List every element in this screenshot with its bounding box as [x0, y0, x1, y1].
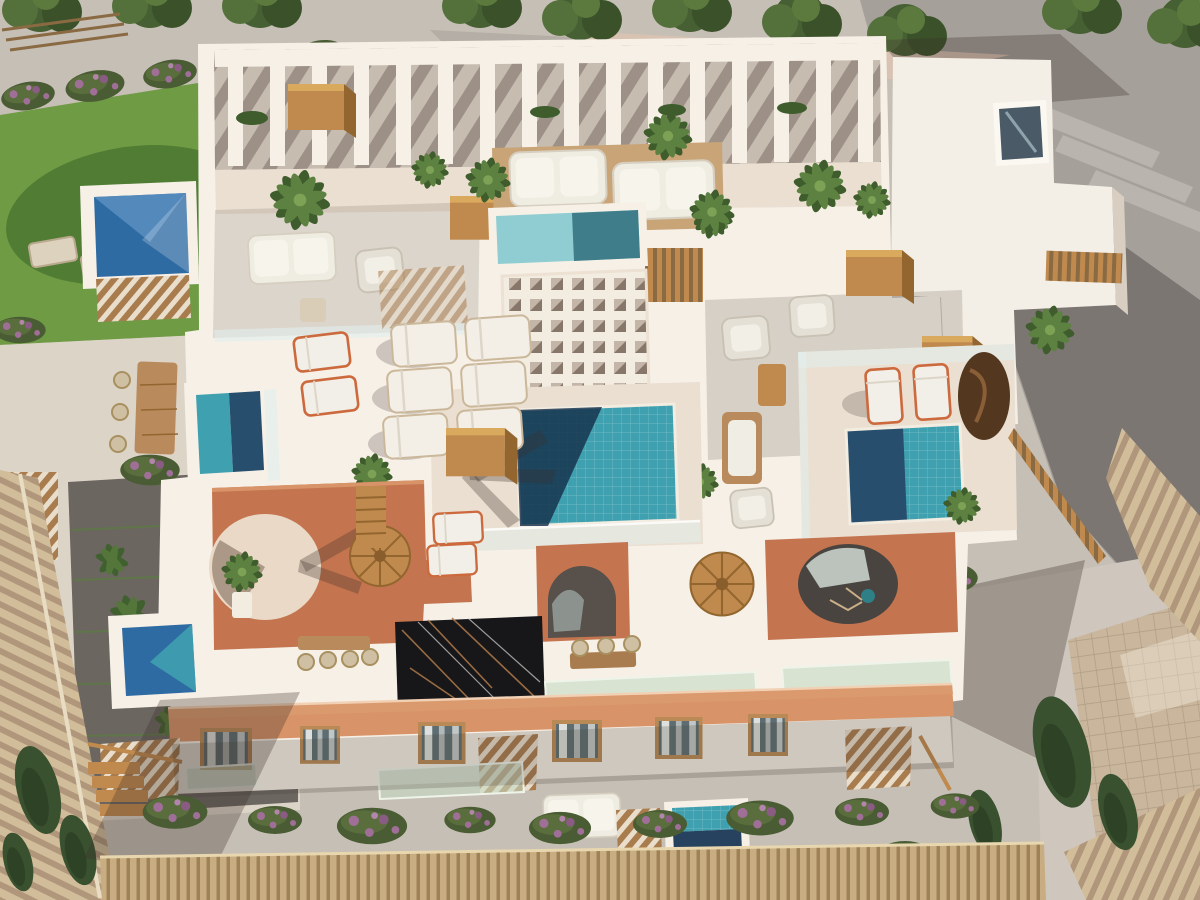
outdoor-armchair — [721, 315, 770, 361]
pool-left-upper — [80, 181, 199, 322]
stair-flight — [356, 486, 386, 548]
coffee-table — [758, 364, 786, 406]
louver-screen — [645, 248, 703, 302]
tower-louver-cornice — [1045, 251, 1122, 284]
plunge-pool-top — [488, 202, 648, 272]
pool-left-mid — [184, 379, 280, 485]
stair-canopy-box — [288, 84, 356, 138]
teal-cushion — [861, 589, 875, 603]
spiral-staircase-right — [691, 553, 754, 616]
garden-dining-table — [110, 361, 178, 454]
wood-deck-strip — [378, 265, 468, 329]
pool-slat-deck — [96, 275, 191, 322]
plant-pot — [232, 592, 252, 618]
dining-under-canopy — [570, 636, 640, 669]
stair-canopy-box — [846, 250, 914, 304]
architectural-render — [0, 0, 1200, 900]
outdoor-sofa — [509, 149, 607, 206]
scene-canvas — [0, 0, 1200, 900]
outdoor-armchair — [789, 295, 835, 338]
bench-cushion — [728, 420, 756, 476]
outdoor-armchair — [729, 487, 774, 529]
coffee-table — [300, 298, 326, 322]
outdoor-sofa — [248, 231, 337, 284]
stair-canopy-box — [446, 428, 517, 485]
pool-bottom-left — [108, 611, 208, 709]
